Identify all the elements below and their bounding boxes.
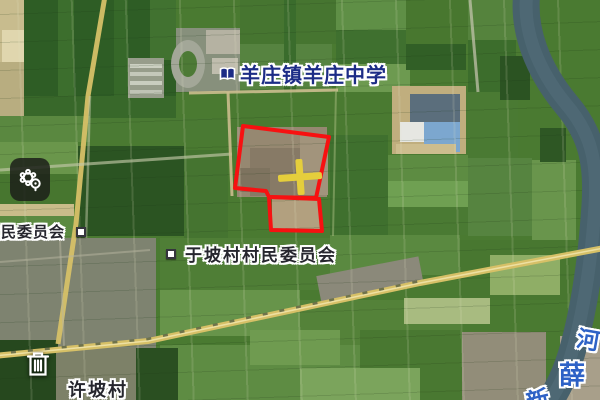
poi-label-text: 村民委员会 [0, 221, 65, 242]
terrain-patch [300, 135, 328, 195]
terrain-patch [388, 181, 468, 207]
terrain-patch [406, 44, 466, 70]
trash-icon [25, 350, 51, 378]
terrain-patch [240, 168, 270, 192]
terrain-patch [336, 0, 406, 30]
poi-label-committee-partial[interactable]: 村民委员会 [0, 221, 86, 242]
poi-label-text: 许坡村 [68, 380, 128, 400]
terrain-patch [24, 96, 176, 118]
river-name-char: 薛 [559, 355, 585, 392]
terrain-patch [0, 62, 24, 116]
poi-label-text: 羊庄镇羊庄中学 [240, 59, 387, 88]
terrain-patch [388, 155, 468, 181]
terrain-patch [179, 51, 197, 77]
terrain-patch [150, 0, 176, 60]
poi-label-text: 于坡村村民委员会 [185, 241, 337, 266]
poi-label-school[interactable]: 羊庄镇羊庄中学 [219, 59, 387, 88]
terrain-patch [468, 158, 532, 236]
terrain-patch [410, 94, 460, 122]
river-name-char: 河 [574, 319, 600, 356]
terrain-patch [134, 348, 178, 400]
terrain-patch [2, 30, 24, 62]
terrain-patch [500, 56, 530, 100]
poi-label-village-committee[interactable]: 于坡村村民委员会 [166, 241, 337, 266]
terrain-patch [206, 30, 240, 54]
terrain-patch [130, 90, 162, 94]
terrain-patch [78, 146, 184, 236]
terrain-patch [406, 0, 468, 44]
terrain-patch [490, 255, 560, 295]
terrain-patch [404, 298, 490, 324]
terrain-patch [532, 160, 576, 240]
poi-square-marker[interactable] [76, 227, 86, 237]
terrain-patch [400, 122, 424, 142]
road [228, 92, 232, 196]
terrain-patch [388, 207, 470, 235]
terrain-patch [396, 144, 456, 154]
terrain-patch [300, 368, 420, 400]
poi-layers-button[interactable] [10, 158, 50, 201]
terrain-patch [272, 199, 320, 230]
terrain-patch [0, 238, 156, 352]
terrain-patch [540, 128, 566, 162]
terrain-patch [130, 64, 162, 68]
terrain-patch [90, 118, 230, 140]
terrain-patch [130, 72, 162, 76]
terrain-patch [468, 0, 518, 40]
terrain-patch [250, 330, 340, 365]
poi-square-marker[interactable] [166, 249, 176, 259]
river-name-char: 新 [522, 379, 553, 400]
poi-label-xupo-village[interactable]: 许坡村 [68, 376, 128, 400]
trash-button[interactable] [23, 349, 53, 381]
terrain-patch [0, 116, 90, 142]
terrain-patch [0, 204, 74, 216]
terrain-patch [130, 81, 162, 85]
terrain-patch [184, 150, 228, 238]
gear-pin-icon [16, 166, 44, 194]
satellite-map[interactable]: 羊庄镇羊庄中学 于坡村村民委员会 村民委员会 许坡村 河 薛 新 [0, 0, 600, 400]
terrain-patch [466, 92, 518, 158]
school-icon [219, 66, 236, 82]
terrain-patch [330, 135, 388, 235]
